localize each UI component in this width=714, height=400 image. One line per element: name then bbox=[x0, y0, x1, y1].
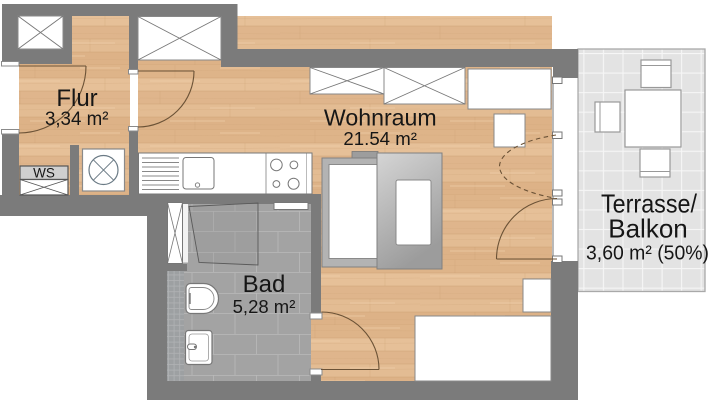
svg-text:Wohnraum: Wohnraum bbox=[324, 105, 437, 131]
svg-text:Bad: Bad bbox=[243, 271, 286, 298]
svg-text:21.54 m²: 21.54 m² bbox=[343, 129, 417, 149]
svg-text:3,34 m²: 3,34 m² bbox=[45, 109, 109, 130]
svg-text:Flur: Flur bbox=[56, 85, 97, 112]
svg-text:5,28 m²: 5,28 m² bbox=[233, 296, 296, 317]
svg-text:WS: WS bbox=[33, 166, 55, 181]
svg-text:Balkon: Balkon bbox=[608, 214, 688, 244]
svg-text:3,60 m² (50%): 3,60 m² (50%) bbox=[586, 242, 709, 265]
